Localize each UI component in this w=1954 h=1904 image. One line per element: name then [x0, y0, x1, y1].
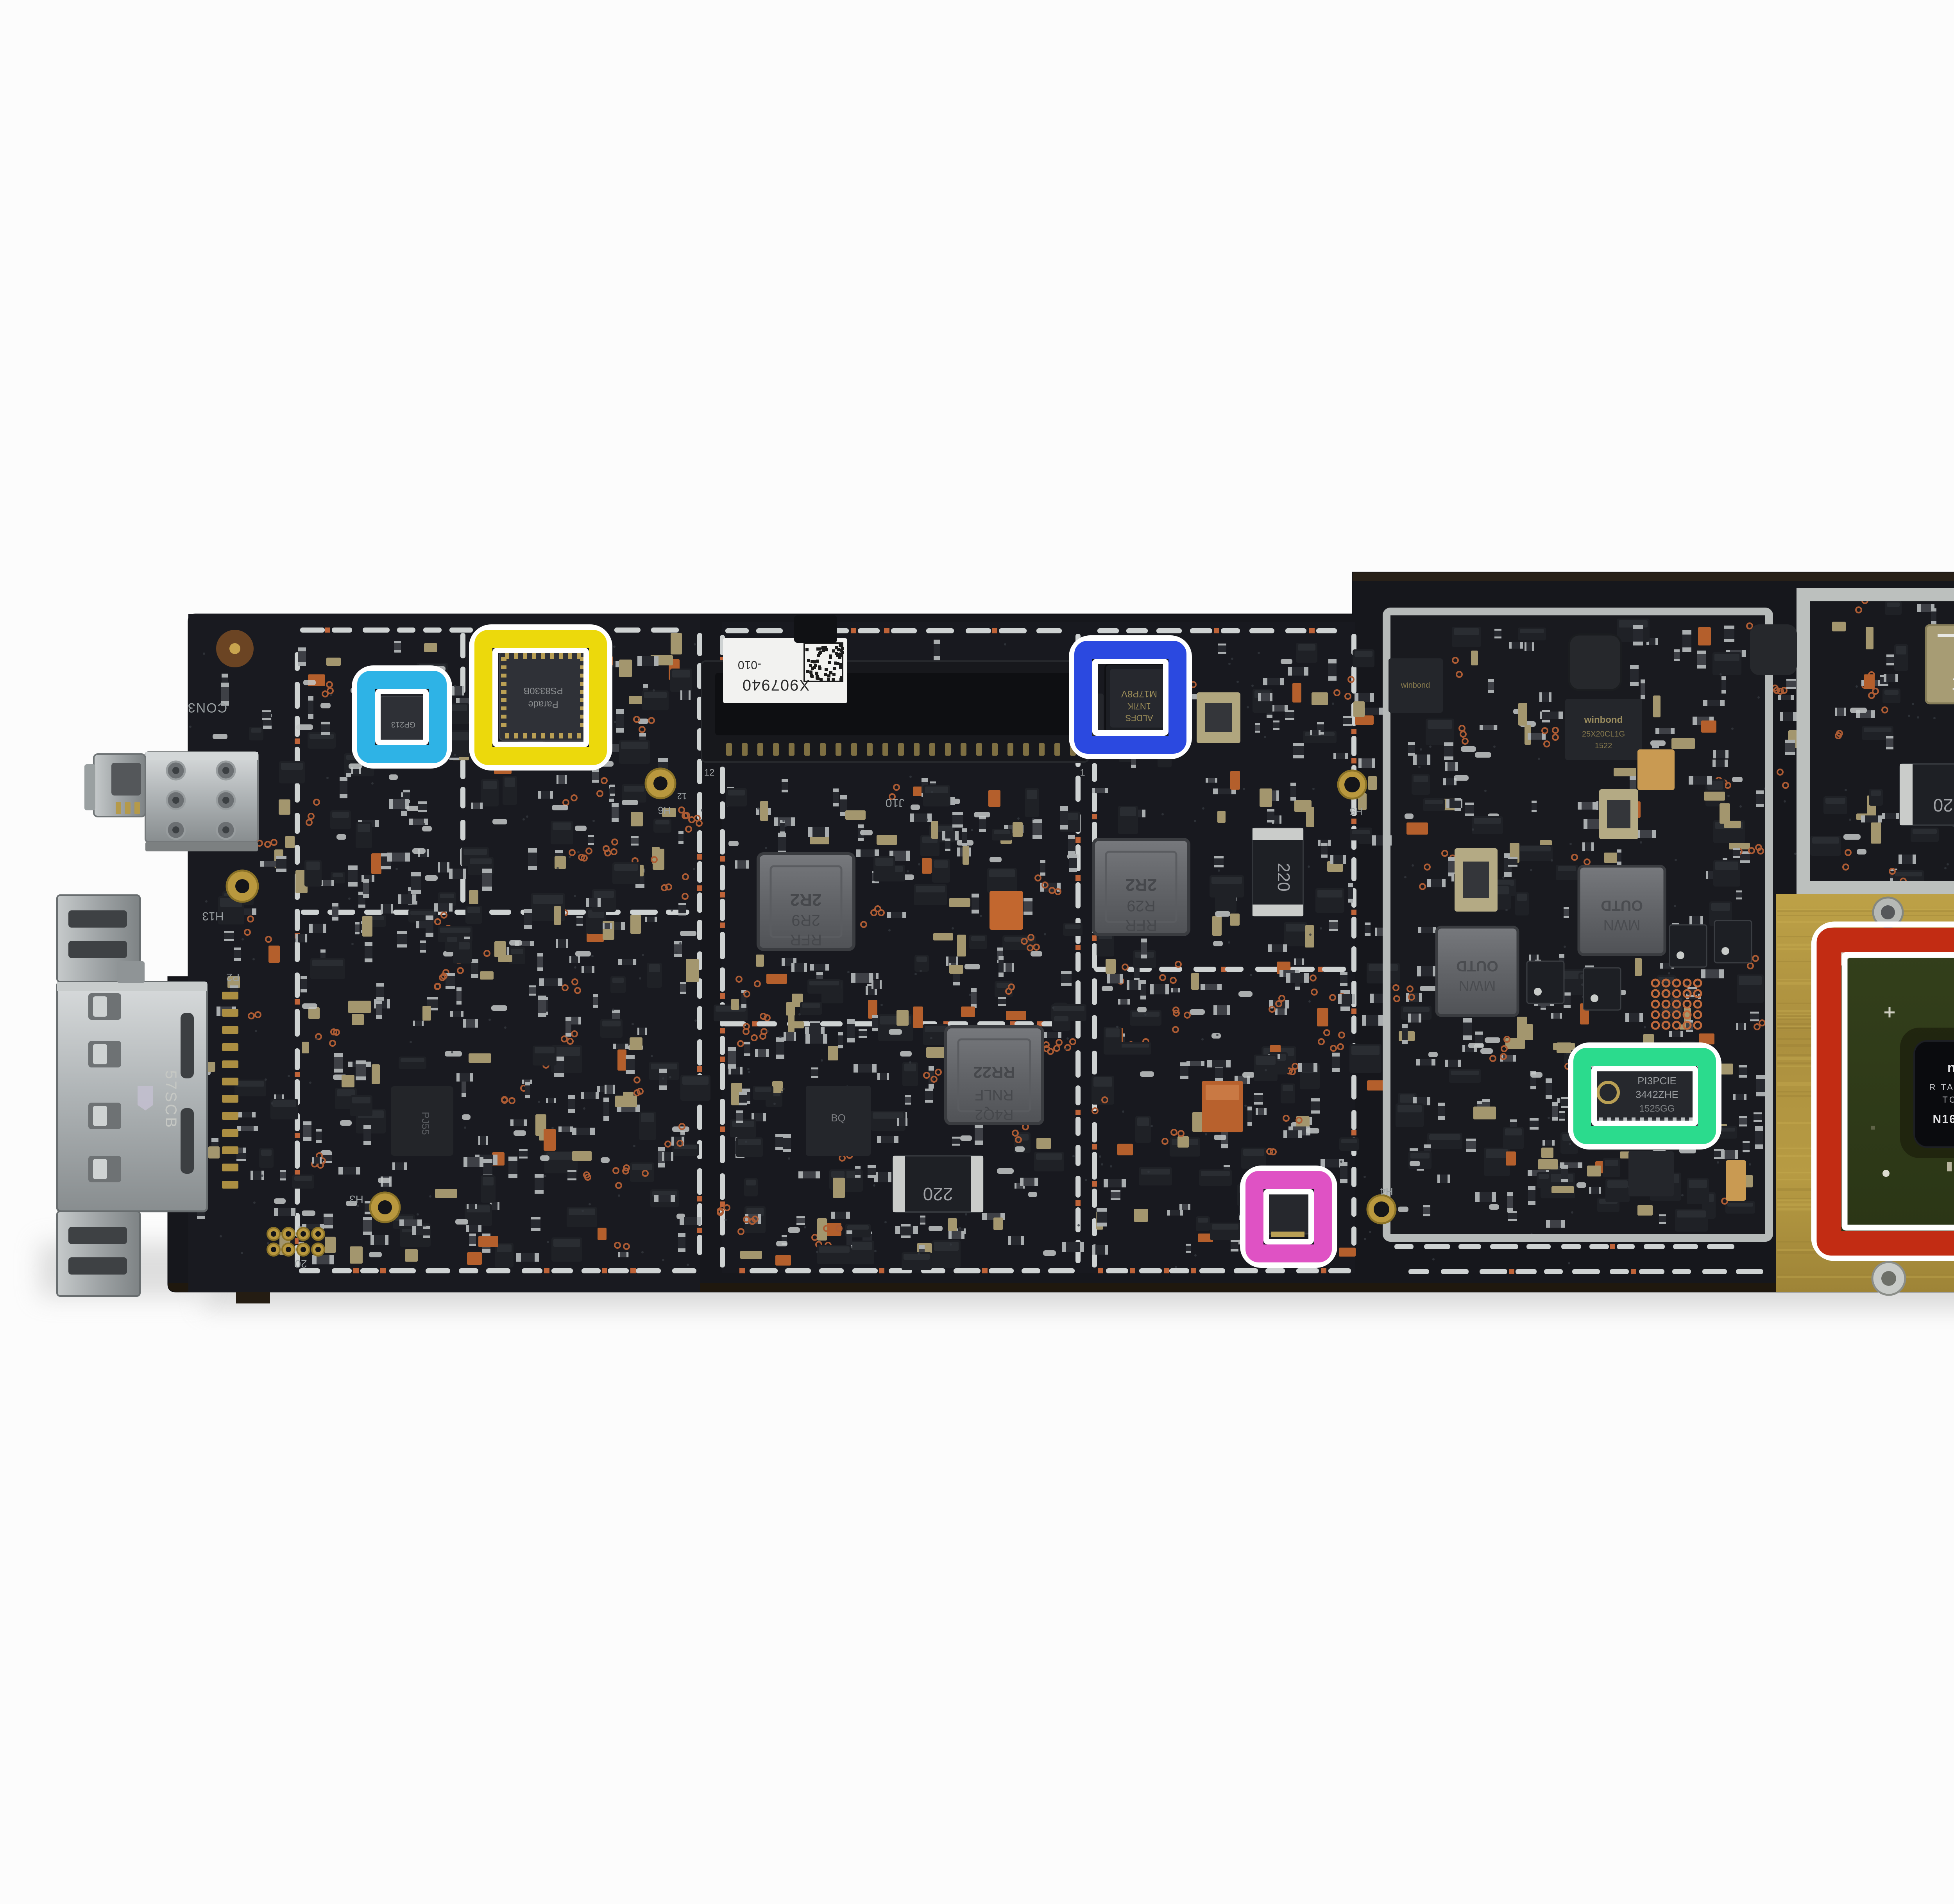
- svg-text:1525GG: 1525GG: [1639, 1103, 1675, 1114]
- svg-text:12: 12: [704, 767, 715, 778]
- svg-text:2R9: 2R9: [791, 912, 820, 929]
- svg-text:1522: 1522: [1595, 742, 1612, 750]
- svg-text:R4Q2: R4Q2: [975, 1106, 1013, 1123]
- svg-text:R29: R29: [1127, 897, 1155, 914]
- svg-text:H3: H3: [349, 1193, 363, 1205]
- svg-text:20: 20: [295, 1258, 307, 1270]
- svg-text:nVIDIA®: nVIDIA®: [1947, 1060, 1954, 1075]
- svg-text:BQ: BQ: [831, 1112, 846, 1124]
- svg-text:H5: H5: [1349, 806, 1362, 817]
- svg-text:2R2: 2R2: [1126, 875, 1157, 894]
- svg-text:12: 12: [677, 791, 687, 801]
- svg-text:TCM819.C1W: TCM819.C1W: [1942, 1095, 1954, 1105]
- svg-text:220: 220: [1933, 795, 1954, 815]
- svg-text:ALDFS: ALDFS: [1126, 713, 1153, 723]
- svg-text:P2: P2: [226, 971, 240, 983]
- svg-text:220: 220: [923, 1184, 953, 1204]
- svg-text:N16S-LG-S-A2: N16S-LG-S-A2: [1933, 1113, 1954, 1126]
- svg-text:RR22: RR22: [973, 1063, 1015, 1082]
- svg-text:MWN: MWN: [1459, 977, 1496, 994]
- svg-text:J10: J10: [886, 796, 904, 809]
- svg-text:OUTD: OUTD: [1456, 958, 1498, 974]
- svg-text:PS8330B: PS8330B: [523, 685, 563, 696]
- svg-text:1N7lK: 1N7lK: [1127, 701, 1151, 711]
- svg-text:H6: H6: [658, 805, 671, 816]
- svg-text:R TAIWAN 1526A2: R TAIWAN 1526A2: [1929, 1082, 1954, 1092]
- svg-text:GP213: GP213: [391, 720, 415, 729]
- svg-text:winbond: winbond: [1584, 715, 1623, 725]
- svg-text:25X20CL1G: 25X20CL1G: [1582, 730, 1625, 738]
- svg-text:220: 220: [1274, 863, 1293, 891]
- svg-text:2R2: 2R2: [790, 890, 822, 909]
- svg-text:RFR: RFR: [790, 931, 822, 948]
- svg-text:PI3PCIE: PI3PCIE: [1637, 1075, 1677, 1087]
- svg-text:H4: H4: [1380, 1185, 1393, 1197]
- svg-text:57SCB: 57SCB: [162, 1070, 179, 1130]
- svg-text:H13: H13: [202, 910, 224, 923]
- svg-text:-010: -010: [738, 658, 761, 671]
- svg-text:OUTD: OUTD: [1601, 897, 1643, 914]
- svg-text:MWN: MWN: [1603, 917, 1641, 933]
- svg-text:152: 152: [1951, 673, 1954, 694]
- svg-text:Parade: Parade: [528, 699, 558, 710]
- svg-text:M17P8V: M17P8V: [1121, 688, 1157, 699]
- svg-text:RFR: RFR: [1125, 917, 1157, 934]
- svg-text:1: 1: [1080, 767, 1085, 778]
- svg-text:CON3: CON3: [187, 700, 227, 715]
- svg-text:RNLF: RNLF: [975, 1087, 1013, 1103]
- svg-text:3442ZHE: 3442ZHE: [1635, 1089, 1678, 1100]
- svg-text:winbond: winbond: [1401, 681, 1430, 690]
- svg-text:PJ55: PJ55: [420, 1112, 431, 1135]
- svg-text:X907940: X907940: [742, 676, 810, 694]
